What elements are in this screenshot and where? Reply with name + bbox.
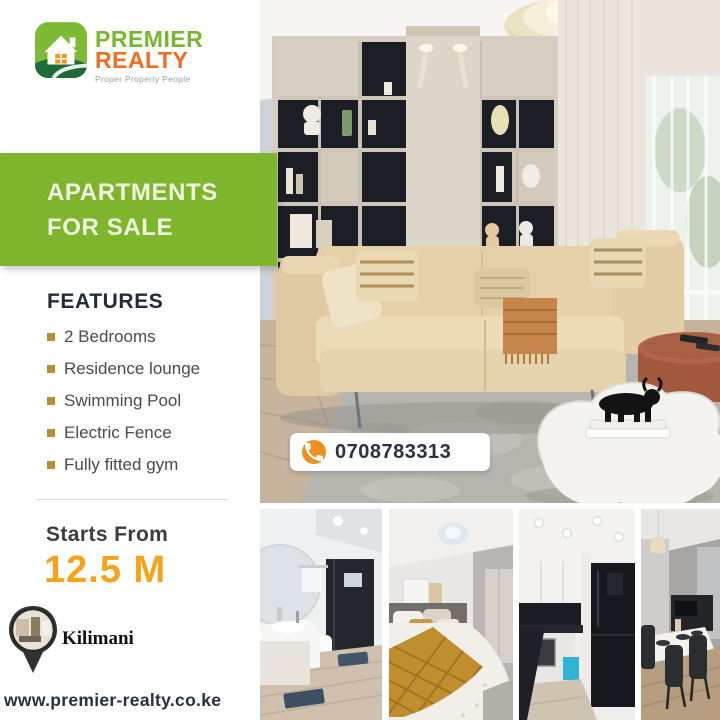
website-url: www.premier-realty.co.ke (4, 690, 221, 711)
photo-kitchen (519, 509, 635, 720)
square-bullet-icon (47, 365, 55, 373)
brand-tagline: Proper Property People (95, 74, 203, 84)
location-pin-icon (7, 605, 59, 675)
thumbnail-row (260, 509, 720, 720)
banner-line1: APARTMENTS (47, 175, 277, 210)
feature-item: Residence lounge (47, 359, 200, 379)
square-bullet-icon (47, 461, 55, 469)
left-panel: PREMIER REALTY Proper Property People AP… (0, 0, 260, 720)
price-label: Starts From (46, 523, 168, 547)
square-bullet-icon (47, 333, 55, 341)
brand-text: PREMIER REALTY Proper Property People (95, 20, 203, 84)
square-bullet-icon (47, 397, 55, 405)
photo-living-room: 0708783313 (260, 0, 720, 503)
divider-line (37, 499, 227, 500)
title-banner: APARTMENTS FOR SALE (0, 153, 277, 266)
feature-label: 2 Bedrooms (64, 327, 156, 347)
location-name: Kilimani (62, 628, 134, 650)
living-room-illustration (260, 0, 720, 503)
photo-dining (641, 509, 720, 720)
house-logo-icon (34, 20, 88, 84)
phone-badge: 0708783313 (290, 433, 490, 471)
feature-label: Fully fitted gym (64, 455, 178, 475)
feature-label: Residence lounge (64, 359, 200, 379)
square-bullet-icon (47, 429, 55, 437)
feature-item: 2 Bedrooms (47, 327, 200, 347)
photo-bedroom (389, 509, 513, 720)
phone-number: 0708783313 (335, 441, 451, 464)
phone-icon (302, 440, 326, 464)
feature-label: Swimming Pool (64, 391, 181, 411)
photo-bathroom (260, 509, 382, 720)
brand-name-line2: REALTY (95, 50, 203, 71)
feature-item: Fully fitted gym (47, 455, 200, 475)
banner-line2: FOR SALE (47, 210, 277, 245)
feature-label: Electric Fence (64, 423, 172, 443)
feature-item: Swimming Pool (47, 391, 200, 411)
features-heading: FEATURES (47, 290, 163, 314)
flyer-canvas: PREMIER REALTY Proper Property People AP… (0, 0, 720, 720)
feature-item: Electric Fence (47, 423, 200, 443)
features-list: 2 Bedrooms Residence lounge Swimming Poo… (47, 327, 200, 487)
brand-logo: PREMIER REALTY Proper Property People (34, 20, 203, 84)
price-value: 12.5 M (44, 549, 166, 592)
